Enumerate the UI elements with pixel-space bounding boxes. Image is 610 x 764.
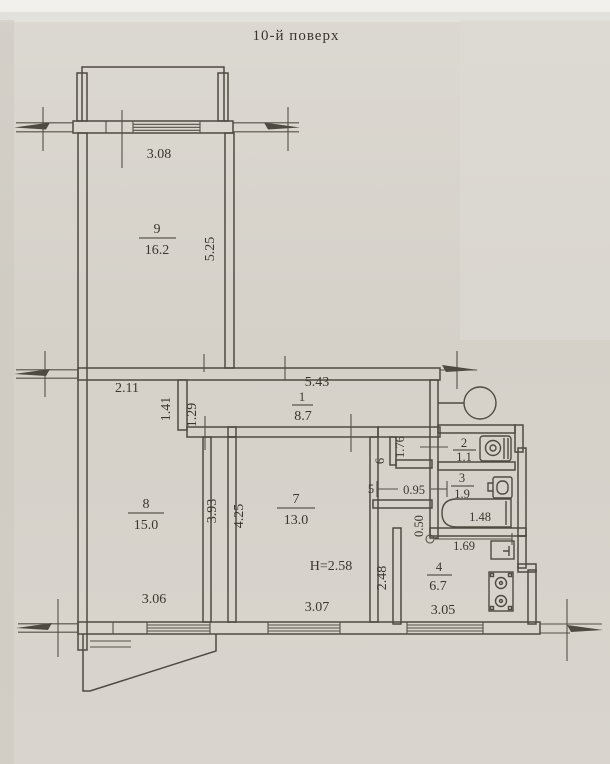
room-6-number: 6	[373, 458, 387, 464]
room-1-number: 1	[299, 390, 305, 404]
dim-3-93: 3.93	[205, 499, 220, 524]
room-7-area: 13.0	[284, 513, 309, 528]
dim-3-06: 3.06	[142, 592, 167, 607]
dim-2-48: 2.48	[375, 566, 390, 591]
room-9-area: 16.2	[145, 243, 170, 258]
dim-3-05: 3.05	[431, 603, 456, 618]
room-9-number: 9	[154, 222, 161, 237]
room-7-number: 7	[293, 492, 300, 507]
floorplan-scan: 10-й поверх	[0, 0, 610, 764]
dim-1-48: 1.48	[469, 510, 491, 524]
room-8-number: 8	[143, 497, 150, 512]
ceiling-height: H=2.58	[310, 559, 353, 574]
room-2-number: 2	[461, 436, 467, 450]
room-1-area: 8.7	[294, 409, 312, 424]
floorplan-svg: 10-й поверх	[0, 0, 610, 764]
dim-3-08: 3.08	[147, 147, 172, 162]
room-3-number: 3	[459, 471, 465, 485]
dim-1-76: 1.76	[393, 436, 407, 458]
dim-4-25: 4.25	[232, 504, 247, 529]
dim-1-29: 1.29	[185, 403, 200, 428]
dim-0-50: 0.50	[412, 515, 426, 537]
dim-5-25: 5.25	[203, 237, 218, 262]
floor-title: 10-й поверх	[253, 28, 340, 44]
room-2-area: 1.1	[456, 450, 472, 464]
dim-0-95: 0.95	[403, 483, 425, 497]
room-8-area: 15.0	[134, 518, 159, 533]
room-5-number: 5	[368, 482, 374, 496]
dim-5-43: 5.43	[305, 375, 330, 390]
room-3-area: 1.9	[454, 487, 470, 501]
dim-2-11: 2.11	[115, 381, 139, 396]
dim-1-41: 1.41	[159, 397, 174, 422]
dim-1-69: 1.69	[453, 539, 475, 553]
room-4-number: 4	[436, 560, 443, 574]
room-4-area: 6.7	[429, 579, 447, 594]
dim-3-07: 3.07	[305, 600, 330, 615]
